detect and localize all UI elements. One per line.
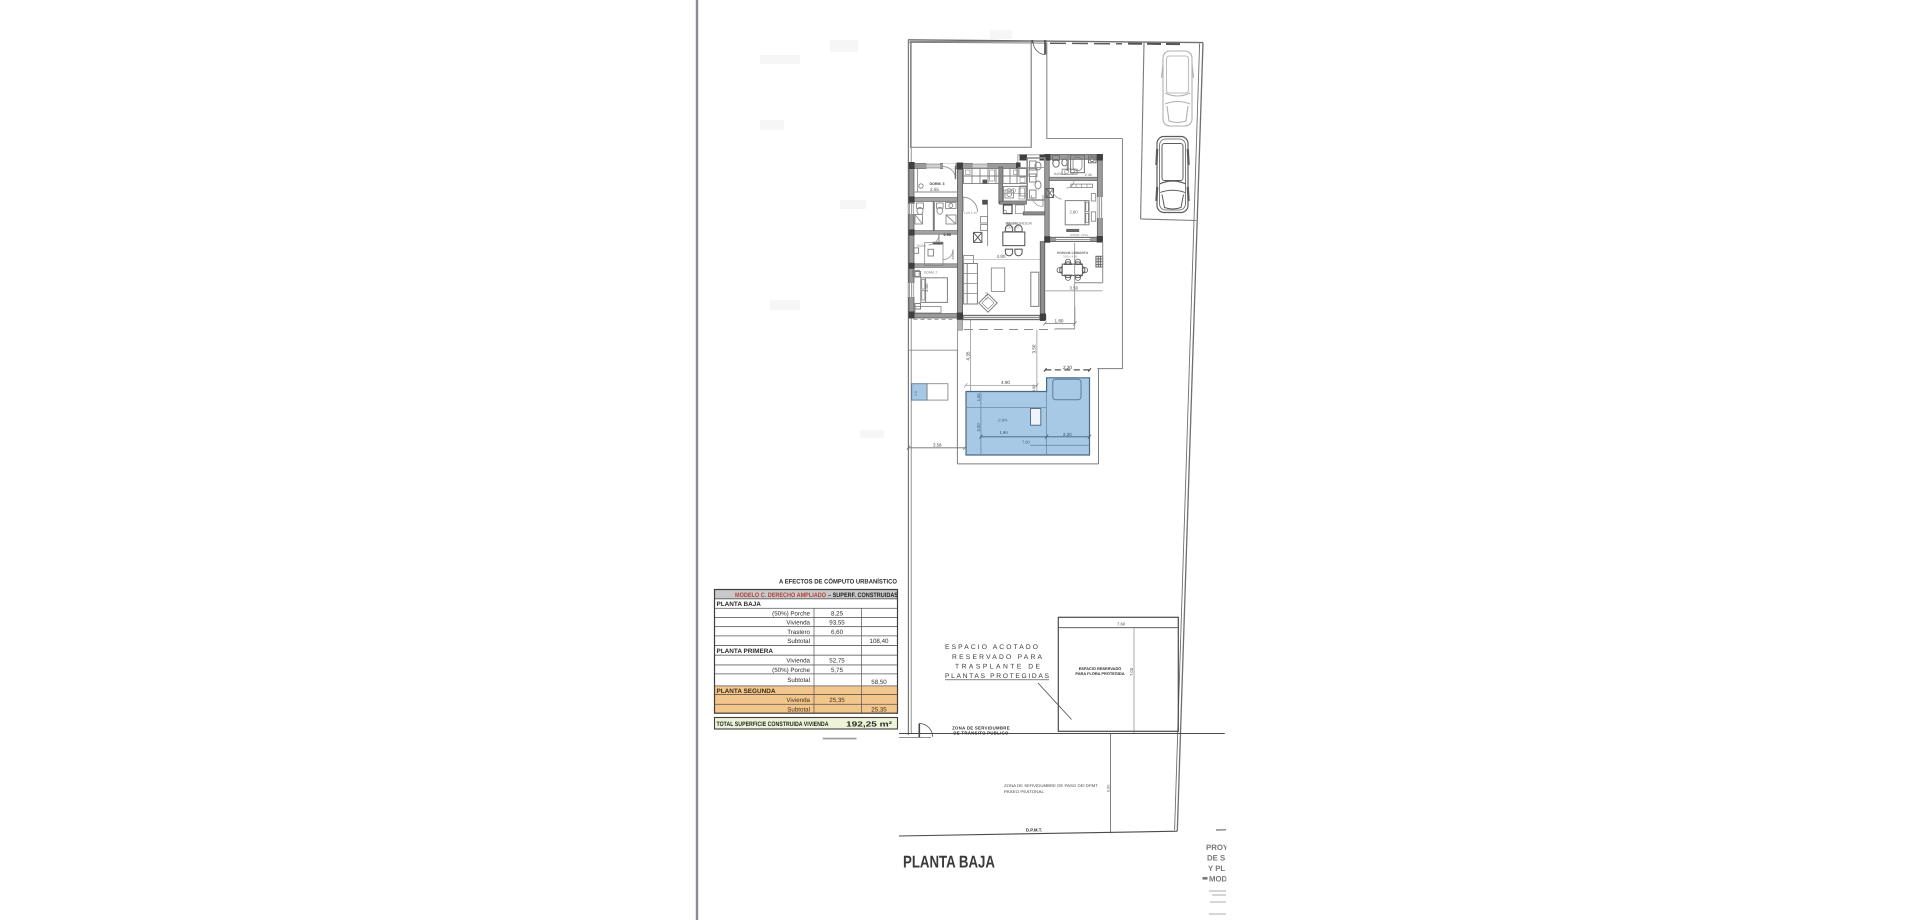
svg-text:Subtotal: Subtotal <box>787 677 810 684</box>
svg-text:PARA FLORA PROTEGIDA: PARA FLORA PROTEGIDA <box>1075 671 1124 676</box>
svg-text:Subtotal: Subtotal <box>787 706 810 713</box>
svg-text:MODELO C. DERECHO AMPLIADO: MODELO C. DERECHO AMPLIADO <box>735 592 826 599</box>
svg-text:Y PL: Y PL <box>1208 864 1225 873</box>
svg-text:A EFECTOS DE CÓMPUTO URBANÍSTI: A EFECTOS DE CÓMPUTO URBANÍSTICO <box>779 578 897 586</box>
svg-text:PLANTA BAJA: PLANTA BAJA <box>903 853 995 872</box>
svg-text:D.P.M.T.: D.P.M.T. <box>1026 828 1042 833</box>
svg-text:ZONA DE SERVIDUMBRE DE PASO DE: ZONA DE SERVIDUMBRE DE PASO DEl DPMT <box>1004 783 1099 788</box>
svg-text:TRASPLANTE DE: TRASPLANTE DE <box>955 664 1041 671</box>
svg-text:PLANTA PRIMERA: PLANTA PRIMERA <box>717 648 774 655</box>
svg-text:ESPACIO ACOTADO: ESPACIO ACOTADO <box>945 644 1038 651</box>
svg-text:7.00: 7.00 <box>1129 667 1134 676</box>
svg-text:PLANTA SEGUNDA: PLANTA SEGUNDA <box>717 688 776 695</box>
svg-text:DE S: DE S <box>1207 854 1225 863</box>
svg-text:108,40: 108,40 <box>870 638 889 645</box>
svg-text:Vivienda: Vivienda <box>786 620 810 627</box>
svg-text:8,25: 8,25 <box>831 610 844 617</box>
svg-text:MOD: MOD <box>1209 875 1228 884</box>
svg-text:25,35: 25,35 <box>829 697 845 704</box>
svg-text:52,75: 52,75 <box>829 658 845 665</box>
svg-text:PLANTA BAJA: PLANTA BAJA <box>717 601 762 608</box>
svg-text:RESERVADO PARA: RESERVADO PARA <box>952 654 1043 661</box>
svg-text:TOTAL SUPERFICIE CONSTRUIDA VI: TOTAL SUPERFICIE CONSTRUIDA VIVIENDA <box>717 721 829 728</box>
svg-text:PASEO PEATONAL: PASEO PEATONAL <box>1004 789 1045 794</box>
svg-text:6,60: 6,60 <box>831 629 844 636</box>
svg-text:– SUPERF. CONSTRUIDAS: – SUPERF. CONSTRUIDAS <box>828 592 899 599</box>
svg-text:25,35: 25,35 <box>871 706 887 713</box>
svg-text:(50%) Porche: (50%) Porche <box>772 610 810 617</box>
svg-text:Subtotal: Subtotal <box>787 638 810 645</box>
svg-text:192,25 m²: 192,25 m² <box>846 720 893 729</box>
svg-text:Vivienda: Vivienda <box>786 697 810 704</box>
svg-text:93,55: 93,55 <box>829 620 845 627</box>
svg-text:Vivienda: Vivienda <box>786 658 810 665</box>
svg-text:Trastero: Trastero <box>787 629 810 636</box>
svg-text:PROY: PROY <box>1206 843 1229 852</box>
svg-text:5,75: 5,75 <box>831 667 844 674</box>
svg-text:7.60: 7.60 <box>1117 622 1126 627</box>
svg-text:58,50: 58,50 <box>871 679 887 686</box>
svg-text:6.00: 6.00 <box>1107 785 1111 792</box>
svg-text:(50%) Porche: (50%) Porche <box>772 667 810 674</box>
svg-text:DE TRÁNSITO PÚBLICO: DE TRÁNSITO PÚBLICO <box>953 731 1009 736</box>
svg-text:PLANTAS PROTEGIDAS: PLANTAS PROTEGIDAS <box>945 673 1050 680</box>
